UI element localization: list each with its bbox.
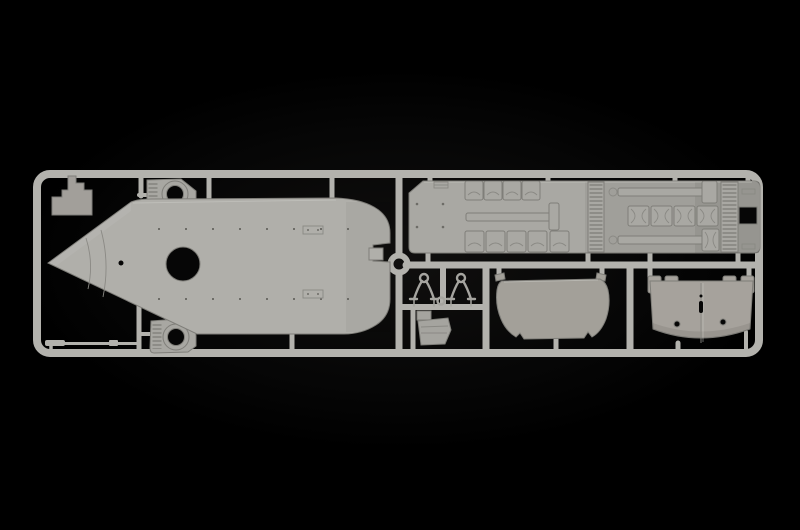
transom-hole-right xyxy=(720,319,726,325)
deck-tbar-top-cross xyxy=(702,181,717,203)
transom-hole-left xyxy=(674,321,680,327)
pump-bracket xyxy=(417,311,431,320)
deck-tbar-bottom xyxy=(618,236,703,244)
bolt-dot xyxy=(416,203,419,206)
pump-fitting xyxy=(417,311,451,345)
windshield-panel xyxy=(495,273,609,339)
seat xyxy=(484,181,502,200)
seat xyxy=(522,181,540,200)
sprue-photo xyxy=(0,0,800,530)
hull-outline xyxy=(48,198,390,334)
davit-leg xyxy=(426,281,434,299)
mast-rod-shaft-1 xyxy=(64,342,110,345)
deck-hatch-opening xyxy=(739,207,757,224)
hull-notch-block xyxy=(369,248,383,260)
cabin-deck xyxy=(409,181,760,253)
hatch xyxy=(702,229,719,251)
mast-rod-collar xyxy=(109,340,118,346)
seat xyxy=(465,181,483,200)
davit-loop xyxy=(420,274,428,282)
rivet xyxy=(317,293,319,295)
davit-leg xyxy=(414,281,422,299)
housing-bottom-hole xyxy=(168,329,185,346)
bolt-dot xyxy=(416,226,419,229)
deck-channel xyxy=(466,213,555,221)
seat xyxy=(528,231,547,252)
transom-panel xyxy=(648,276,754,343)
transom-slot xyxy=(699,301,703,313)
corner-plate-body xyxy=(52,176,92,215)
hull-turret-hole xyxy=(166,247,200,281)
davit-right xyxy=(447,274,475,299)
davit-leg xyxy=(451,281,459,299)
seat xyxy=(507,231,526,252)
mast-rod-tip xyxy=(45,340,65,346)
davit-left xyxy=(410,274,438,299)
seat xyxy=(465,231,484,252)
hull-right-shade xyxy=(346,202,391,332)
seat xyxy=(486,231,505,252)
photo-background xyxy=(0,0,800,530)
rivet xyxy=(317,229,319,231)
rivet xyxy=(307,293,309,295)
bolt-dot xyxy=(442,226,445,229)
corner-plate xyxy=(52,176,92,215)
hull-small-hole xyxy=(119,261,124,266)
pump-body xyxy=(418,318,451,345)
transom-slot-dot xyxy=(700,295,703,298)
deck-channel-tee xyxy=(549,203,559,230)
windshield-tab-left xyxy=(495,273,505,281)
rivet xyxy=(307,229,309,231)
mast-rod-shaft-2 xyxy=(117,342,137,345)
mast-rod xyxy=(45,340,137,346)
seat xyxy=(503,181,521,200)
bolt-dot xyxy=(442,203,445,206)
davit-leg xyxy=(463,281,471,299)
deck-tbar-top xyxy=(618,188,703,196)
seat xyxy=(550,231,569,252)
windshield-glass xyxy=(497,279,610,339)
davit-loop xyxy=(457,274,465,282)
hull-deck xyxy=(48,198,391,334)
